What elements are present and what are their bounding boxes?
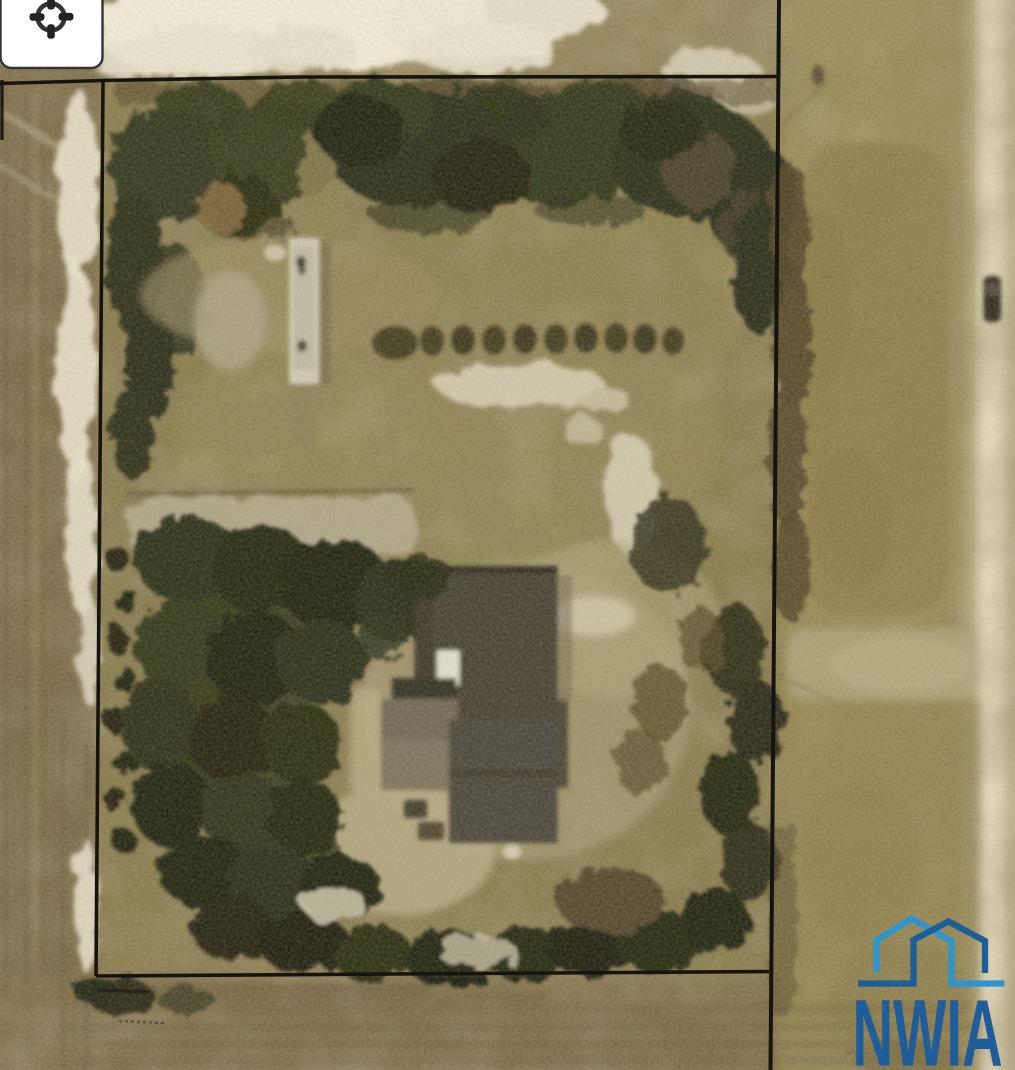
svg-text:NWIA: NWIA [853, 979, 1003, 1070]
